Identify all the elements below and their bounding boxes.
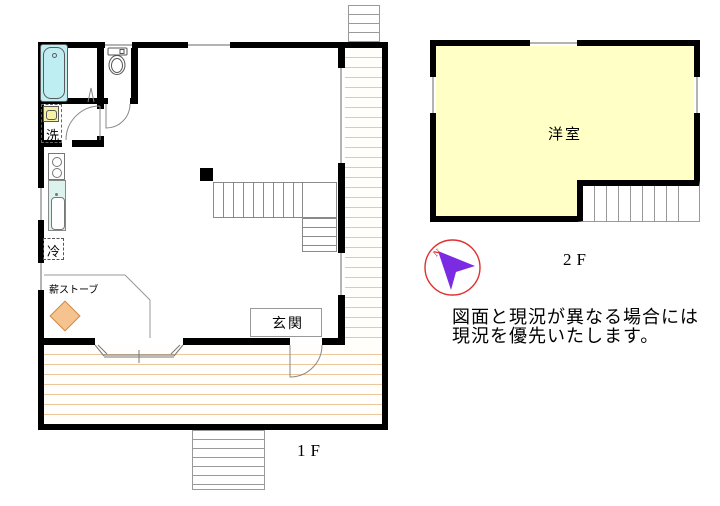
floor1-label: 1F	[297, 441, 325, 461]
window-left-stove	[38, 263, 44, 290]
front-door-gap	[290, 338, 322, 345]
disclaimer-line2: 現況を優先いたします。	[452, 327, 699, 346]
wall-washroom-right-top	[97, 104, 104, 109]
window-2f-left	[430, 77, 436, 113]
sliding-door-gap	[95, 338, 183, 345]
window-right-lower	[338, 253, 345, 295]
plan-1f: 洗 冷 薪ストーブ 玄関	[38, 42, 388, 430]
bathtub-drain	[52, 53, 57, 58]
floor-plan-page: 洗 冷 薪ストーブ 玄関	[0, 0, 720, 506]
wall-washroom-bottom-r	[72, 140, 104, 147]
kitchen-sink	[51, 197, 65, 230]
entrance-label: 玄関	[272, 313, 304, 333]
kitchen-counter	[48, 180, 66, 231]
staircase-1f-landing	[302, 182, 337, 218]
wall-bath-toilet	[97, 42, 104, 104]
exterior-steps-bottom	[192, 430, 265, 490]
gas-stove	[48, 153, 65, 180]
washing-machine-drum	[46, 110, 57, 120]
wood-stove-label: 薪ストーブ	[49, 281, 98, 296]
window-left-kitchen	[38, 188, 44, 220]
plan-2f: 洋室	[430, 40, 700, 222]
washing-machine	[43, 106, 59, 122]
deck-bottom	[44, 345, 382, 424]
bathtub	[40, 44, 68, 102]
fridge-label: 冷	[47, 241, 60, 260]
staircase-1f-upper-run	[213, 182, 303, 218]
disclaimer-line1: 図面と現況が異なる場合には	[452, 308, 699, 327]
window-right-upper	[338, 68, 345, 163]
room-label-2f: 洋室	[548, 123, 582, 144]
deck-right	[345, 48, 382, 345]
floor2-label: 2F	[563, 250, 591, 270]
disclaimer-text: 図面と現況が異なる場合には 現況を優先いたします。	[452, 308, 699, 346]
faucet-icon	[55, 193, 58, 196]
wall-toilet-bottom-stub-r	[130, 98, 138, 104]
staircase-2f-treads	[583, 186, 685, 221]
window-toilet-top	[105, 42, 132, 48]
stair-newel-square	[200, 168, 213, 181]
wall-toilet-right	[131, 42, 138, 104]
burner-1	[52, 157, 62, 167]
staircase-1f-lower-run	[302, 218, 337, 252]
window-living-top	[188, 42, 230, 48]
washer-label: 洗	[46, 125, 59, 144]
window-2f-top	[530, 40, 577, 46]
exterior-steps-top	[348, 5, 380, 44]
staircase-2f	[577, 180, 700, 222]
burner-2	[52, 168, 62, 178]
window-2f-right	[694, 77, 700, 113]
wall-toilet-bottom-stub-l	[104, 98, 108, 104]
north-arrow-icon: N	[423, 238, 482, 297]
compass: N	[423, 238, 482, 297]
